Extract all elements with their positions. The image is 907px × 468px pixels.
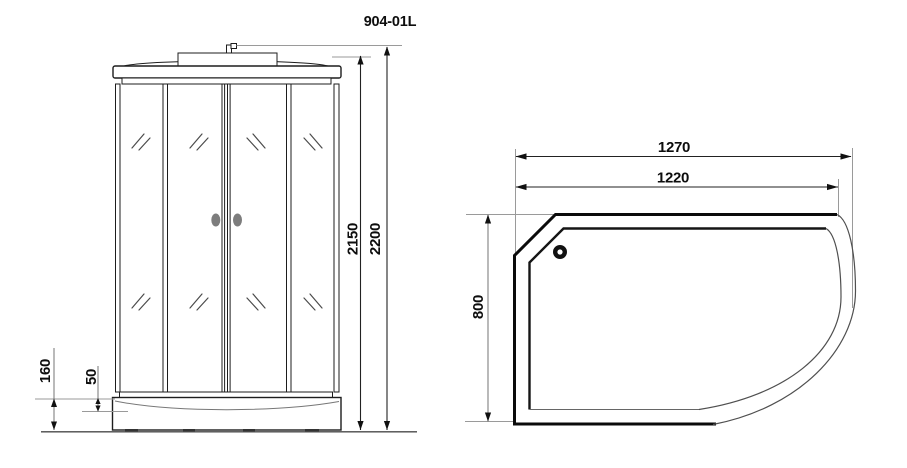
- glass-hatch: [247, 134, 265, 150]
- arrowhead: [485, 413, 491, 422]
- dim-label-2150: 2150: [345, 223, 362, 255]
- dim-overall-height: 2200: [237, 46, 403, 431]
- arrowhead: [95, 406, 100, 412]
- door-stile-right: [228, 84, 231, 392]
- glass-hatch: [247, 294, 265, 310]
- frame-post: [116, 84, 121, 392]
- arrowhead: [516, 153, 527, 159]
- arrowhead: [485, 215, 491, 224]
- dim-tray-height: 160: [35, 348, 115, 430]
- dim-inner-width: 1220: [516, 170, 839, 191]
- plan-view: 1270 1220 800: [465, 139, 856, 425]
- glass-hatch: [304, 294, 322, 310]
- dim-label-160: 160: [37, 359, 54, 383]
- roof-band: [113, 66, 341, 78]
- arrowhead: [516, 184, 527, 190]
- arrowhead: [384, 421, 390, 430]
- door-handle-right: [233, 214, 242, 227]
- frame-post: [163, 84, 168, 392]
- bottom-sill: [120, 392, 333, 398]
- glass-hatch-marks: [132, 134, 322, 310]
- arrowhead: [357, 421, 363, 430]
- dim-label-1220: 1220: [657, 170, 689, 187]
- roof-cap-box: [178, 53, 277, 66]
- glass-hatch: [190, 294, 208, 310]
- dim-depth: 800: [470, 215, 491, 422]
- roof-inner-band: [122, 78, 331, 84]
- glass-hatch: [304, 134, 322, 150]
- arrowhead: [384, 47, 390, 56]
- tray-outer-curve: [713, 215, 856, 425]
- frame-post: [334, 84, 339, 392]
- glass-hatch: [132, 294, 150, 310]
- frame-posts: [116, 84, 340, 392]
- tray-inner-curve: [699, 229, 841, 410]
- front-view: 904-01L: [35, 14, 417, 432]
- arrowhead: [51, 399, 57, 408]
- dim-label-1270: 1270: [658, 139, 690, 156]
- dim-overall-width: 1270: [516, 139, 852, 160]
- shower-pipe: [227, 44, 237, 55]
- arrowhead: [841, 153, 852, 159]
- frame-post: [287, 84, 292, 392]
- arrowhead: [827, 184, 838, 190]
- drain-hole: [555, 247, 565, 257]
- door-stile-left: [222, 84, 225, 392]
- technical-drawing: 904-01L: [0, 0, 907, 468]
- dim-label-2200: 2200: [367, 223, 384, 255]
- dim-label-800: 800: [470, 295, 487, 319]
- pipe-cap: [231, 44, 237, 49]
- drawing-canvas: 904-01L: [0, 0, 907, 468]
- model-number: 904-01L: [364, 14, 417, 30]
- glass-hatch: [132, 134, 150, 150]
- arrowhead: [51, 422, 57, 431]
- glass-hatch: [190, 134, 208, 150]
- dim-label-50: 50: [83, 369, 100, 385]
- shower-tray-front: [113, 398, 342, 431]
- door-handle-left: [211, 214, 220, 227]
